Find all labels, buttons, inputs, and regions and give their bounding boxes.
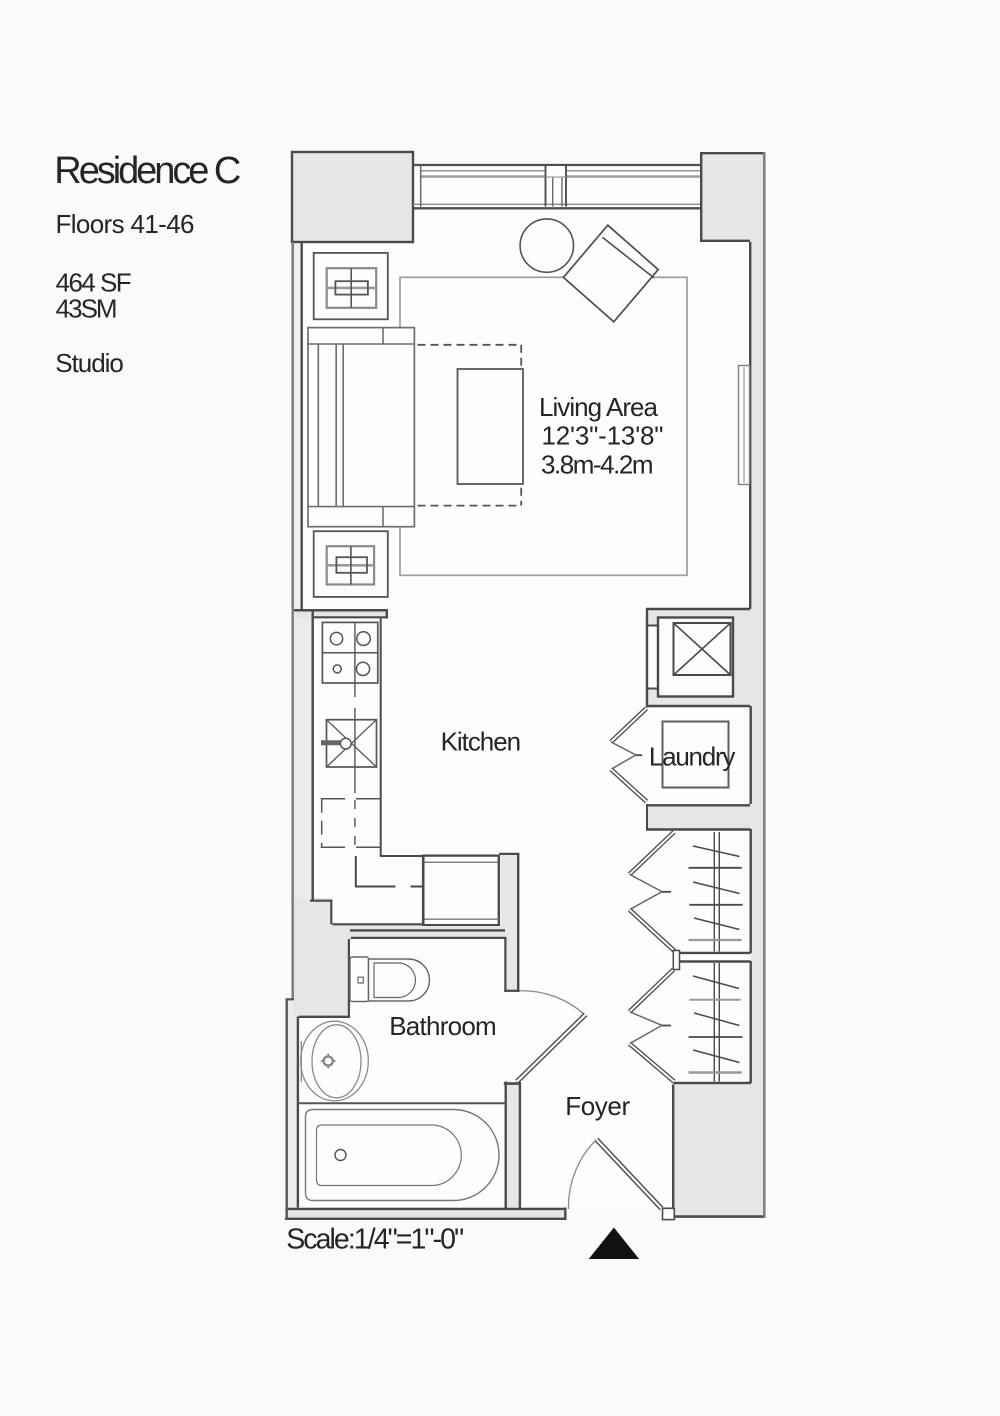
svg-text:Living Area: Living Area bbox=[539, 392, 659, 422]
svg-text:Kitchen: Kitchen bbox=[441, 727, 521, 757]
svg-text:Foyer: Foyer bbox=[565, 1091, 630, 1121]
svg-text:Scale:1/4"=1"-0": Scale:1/4"=1"-0" bbox=[286, 1224, 464, 1256]
svg-text:Floors 41-46: Floors 41-46 bbox=[56, 209, 195, 239]
svg-text:Bathroom: Bathroom bbox=[389, 1011, 497, 1041]
svg-text:Studio: Studio bbox=[55, 348, 124, 378]
svg-text:12'3"-13'8": 12'3"-13'8" bbox=[542, 421, 664, 451]
svg-text:Laundry: Laundry bbox=[649, 741, 736, 771]
svg-text:3.8m-4.2m: 3.8m-4.2m bbox=[541, 449, 654, 479]
svg-text:43SM: 43SM bbox=[56, 293, 118, 323]
svg-text:Residence C: Residence C bbox=[54, 150, 241, 192]
